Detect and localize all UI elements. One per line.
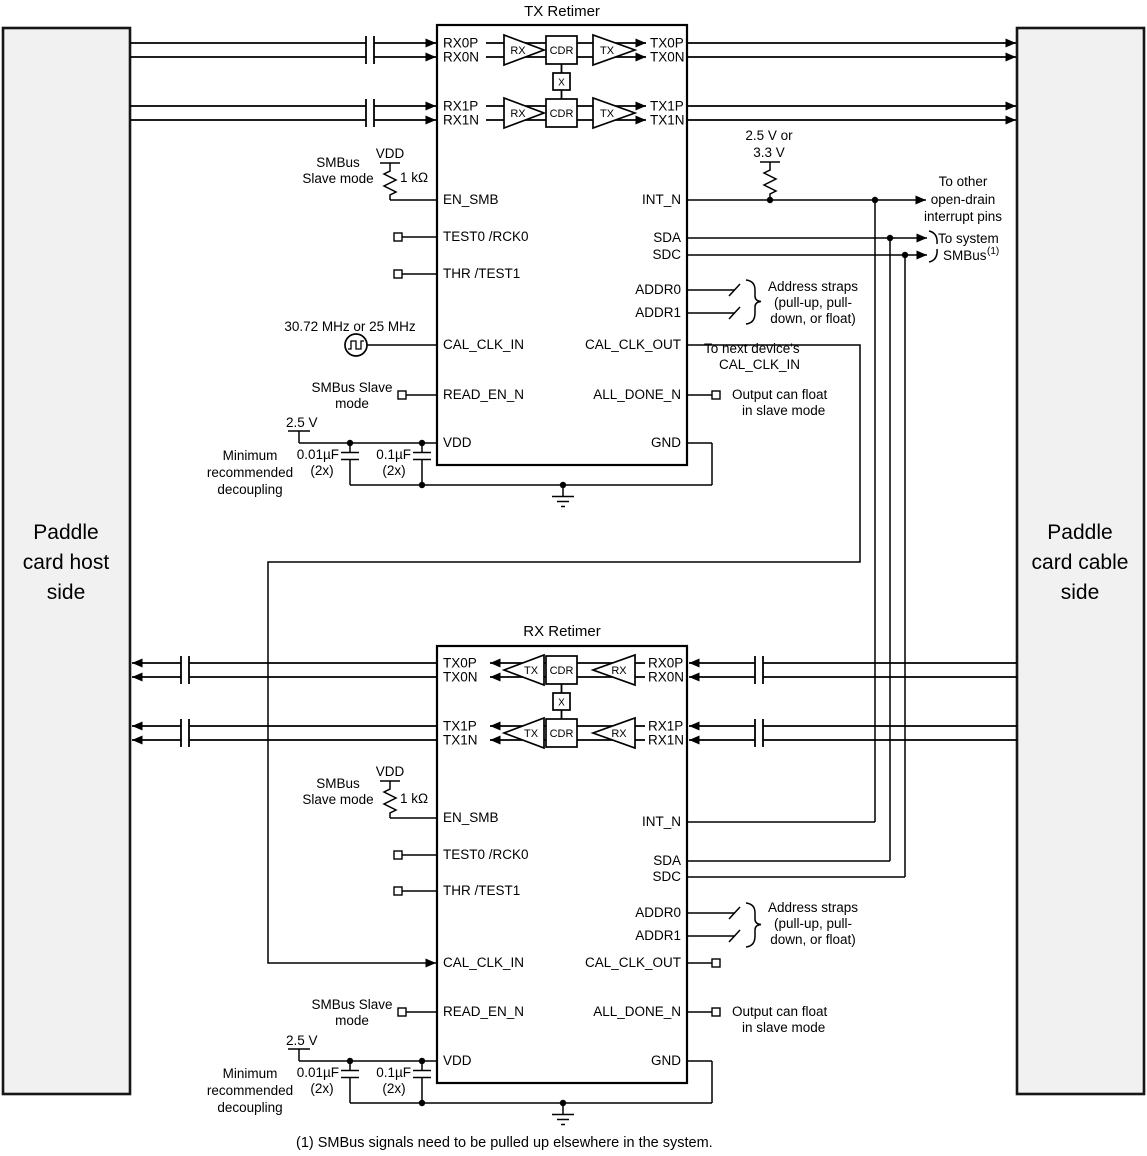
- pin-tx1n: TX1N: [443, 733, 478, 748]
- tx-amp-label: TX: [600, 108, 615, 120]
- cal-clk-out-pad: [712, 959, 720, 967]
- pin-rx0n: RX0N: [648, 670, 684, 685]
- all-done-pad: [712, 1008, 720, 1016]
- rx-to-host-lines: [132, 656, 437, 747]
- pin-sda: SDA: [653, 853, 681, 868]
- decoupling-note: decoupling: [217, 1100, 282, 1115]
- pin-thr: THR /TEST1: [443, 883, 520, 898]
- cdr-label: CDR: [550, 728, 574, 740]
- rx-amp-label: RX: [510, 108, 526, 120]
- pin-test0: TEST0 /RCK0: [443, 229, 529, 244]
- all-done-note: Output can float: [732, 1004, 828, 1019]
- pin-cal-clk-in: CAL_CLK_IN: [443, 955, 524, 970]
- crosspoint-label: X: [558, 78, 565, 89]
- pin-sda: SDA: [653, 230, 681, 245]
- pin-tx0p: TX0P: [650, 36, 684, 51]
- pin-tx0p: TX0P: [443, 656, 477, 671]
- rx-amp-label: RX: [611, 728, 627, 740]
- pin-read-en-n: READ_EN_N: [443, 387, 524, 402]
- decoupling-note: recommended: [207, 465, 293, 480]
- thr-pad: [394, 270, 402, 278]
- pin-cal-clk-in: CAL_CLK_IN: [443, 337, 524, 352]
- pin-vdd: VDD: [443, 1053, 472, 1068]
- read-en-note: mode: [335, 396, 369, 411]
- decoupling-note: Minimum: [223, 1066, 278, 1081]
- addr-straps-note: Address straps: [768, 900, 858, 915]
- smbus-dest-superscript: (1): [987, 246, 999, 257]
- smbus-dest-note: SMBus: [943, 248, 987, 263]
- cap1-qty: (2x): [310, 1081, 333, 1096]
- retimer-schematic: Paddle card host side Paddle card cable …: [0, 0, 1147, 1156]
- tx-to-cable-lines: [687, 43, 1016, 120]
- smbus-slave-mode-label: SMBus: [316, 776, 360, 791]
- pin-gnd: GND: [651, 1053, 681, 1068]
- left-paddle-card: Paddle card host side: [3, 28, 130, 1094]
- cdr-label: CDR: [550, 45, 574, 57]
- int-dest-note: To other: [939, 174, 988, 189]
- test0-pad: [394, 851, 402, 859]
- pullup-resistor-icon: [384, 163, 396, 200]
- all-done-note: in slave mode: [742, 403, 825, 418]
- pin-tx1p: TX1P: [443, 719, 477, 734]
- decoupling-note: decoupling: [217, 482, 282, 497]
- pin-en-smb: EN_SMB: [443, 192, 499, 207]
- pin-rx0n: RX0N: [443, 50, 479, 65]
- int-pullup-resistor-icon: [764, 162, 776, 200]
- read-en-pad: [398, 1008, 406, 1016]
- pin-addr0: ADDR0: [635, 282, 681, 297]
- all-done-note: in slave mode: [742, 1020, 825, 1035]
- cdr-label: CDR: [550, 665, 574, 677]
- all-done-pad: [712, 391, 720, 399]
- smbus-slave-mode-label: SMBus: [316, 155, 360, 170]
- pin-vdd: VDD: [443, 435, 472, 450]
- right-paddle-label-2: card cable: [1032, 551, 1129, 574]
- pin-thr: THR /TEST1: [443, 266, 520, 281]
- tx-retimer-title: TX Retimer: [524, 3, 600, 20]
- cable-to-rx-lines: [689, 656, 1017, 747]
- right-paddle-card: Paddle card cable side: [1017, 28, 1144, 1094]
- pin-en-smb: EN_SMB: [443, 810, 499, 825]
- clock-wave-icon: [348, 341, 364, 349]
- read-en-note: SMBus Slave: [311, 997, 392, 1012]
- pin-addr1: ADDR1: [635, 928, 681, 943]
- vdd-supply-label: VDD: [376, 764, 405, 779]
- pin-sdc: SDC: [652, 247, 681, 262]
- pullup-resistor-icon: [384, 781, 396, 818]
- tx-amp-label: TX: [524, 665, 539, 677]
- cdr-label: CDR: [550, 108, 574, 120]
- int-dest-note: interrupt pins: [924, 209, 1002, 224]
- cap2-label: 0.1µF: [376, 1065, 411, 1080]
- smbus-slave-mode-label: Slave mode: [302, 792, 373, 807]
- resistor-value-label: 1 kΩ: [400, 170, 428, 185]
- pin-rx1p: RX1P: [648, 719, 683, 734]
- smbus-slave-mode-label: Slave mode: [302, 171, 373, 186]
- crosspoint-label: X: [558, 698, 565, 709]
- addr-straps-note: down, or float): [770, 932, 856, 947]
- right-paddle-label-1: Paddle: [1047, 521, 1112, 544]
- pin-rx1p: RX1P: [443, 99, 478, 114]
- pin-rx1n: RX1N: [648, 733, 684, 748]
- rx-amp-label: RX: [510, 45, 526, 57]
- pin-sdc: SDC: [652, 869, 681, 884]
- left-paddle-label-3: side: [47, 581, 86, 604]
- pin-all-done-n: ALL_DONE_N: [593, 1004, 681, 1019]
- pin-rx0p: RX0P: [443, 36, 478, 51]
- next-device-note: To next device's: [704, 341, 800, 356]
- cap2-qty: (2x): [382, 463, 405, 478]
- pin-int-n: INT_N: [642, 814, 681, 829]
- schematic-page: Paddle card host side Paddle card cable …: [0, 0, 1147, 1156]
- next-device-note: CAL_CLK_IN: [719, 357, 800, 372]
- addr-straps-note: down, or float): [770, 311, 856, 326]
- pin-gnd: GND: [651, 435, 681, 450]
- read-en-note: mode: [335, 1013, 369, 1028]
- addr-straps-note: (pull-up, pull-: [774, 916, 852, 931]
- pin-cal-clk-out: CAL_CLK_OUT: [585, 955, 681, 970]
- pin-tx1p: TX1P: [650, 99, 684, 114]
- tx-amp-label: TX: [600, 45, 615, 57]
- tx-amp-label: TX: [524, 728, 539, 740]
- addr-straps-note: (pull-up, pull-: [774, 295, 852, 310]
- pin-rx1n: RX1N: [443, 113, 479, 128]
- cap2-qty: (2x): [382, 1081, 405, 1096]
- test0-pad: [394, 233, 402, 241]
- pin-int-n: INT_N: [642, 192, 681, 207]
- rx-amp-label: RX: [611, 665, 627, 677]
- read-en-note: SMBus Slave: [311, 380, 392, 395]
- pin-cal-clk-out: CAL_CLK_OUT: [585, 337, 681, 352]
- host-to-tx-lines: [130, 36, 436, 127]
- cap1-qty: (2x): [310, 463, 333, 478]
- pin-read-en-n: READ_EN_N: [443, 1004, 524, 1019]
- int-dest-note: open-drain: [931, 192, 996, 207]
- supply-2v5-label: 2.5 V: [286, 1033, 318, 1048]
- right-paddle-label-3: side: [1061, 581, 1100, 604]
- cap2-label: 0.1µF: [376, 447, 411, 462]
- pin-rx0p: RX0P: [648, 656, 683, 671]
- cap1-label: 0.01µF: [297, 1065, 339, 1080]
- rx-retimer-title: RX Retimer: [523, 623, 601, 640]
- decoupling-note: Minimum: [223, 448, 278, 463]
- cap1-label: 0.01µF: [297, 447, 339, 462]
- addr-brace: [746, 280, 761, 324]
- pin-addr1: ADDR1: [635, 305, 681, 320]
- decoupling-note: recommended: [207, 1083, 293, 1098]
- smbus-dest-note: To system: [938, 231, 999, 246]
- smbus-brace-bottom: [929, 249, 937, 262]
- thr-pad: [394, 887, 402, 895]
- pin-addr0: ADDR0: [635, 905, 681, 920]
- pin-all-done-n: ALL_DONE_N: [593, 387, 681, 402]
- addr-brace: [746, 903, 761, 947]
- int-pullup-voltage: 3.3 V: [753, 145, 785, 160]
- clock-freq-label: 30.72 MHz or 25 MHz: [284, 319, 416, 334]
- left-paddle-label-1: Paddle: [33, 521, 98, 544]
- all-done-note: Output can float: [732, 387, 828, 402]
- smbus-brace-top: [929, 231, 937, 244]
- pin-tx0n: TX0N: [650, 50, 685, 65]
- vdd-supply-label: VDD: [376, 146, 405, 161]
- footnote: (1) SMBus signals need to be pulled up e…: [296, 1135, 713, 1151]
- resistor-value-label: 1 kΩ: [400, 791, 428, 806]
- left-paddle-label-2: card host: [23, 551, 110, 574]
- pin-test0: TEST0 /RCK0: [443, 847, 529, 862]
- read-en-pad: [398, 391, 406, 399]
- int-pullup-voltage: 2.5 V or: [745, 128, 793, 143]
- addr-straps-note: Address straps: [768, 279, 858, 294]
- pin-tx1n: TX1N: [650, 113, 685, 128]
- supply-2v5-label: 2.5 V: [286, 415, 318, 430]
- pin-tx0n: TX0N: [443, 670, 478, 685]
